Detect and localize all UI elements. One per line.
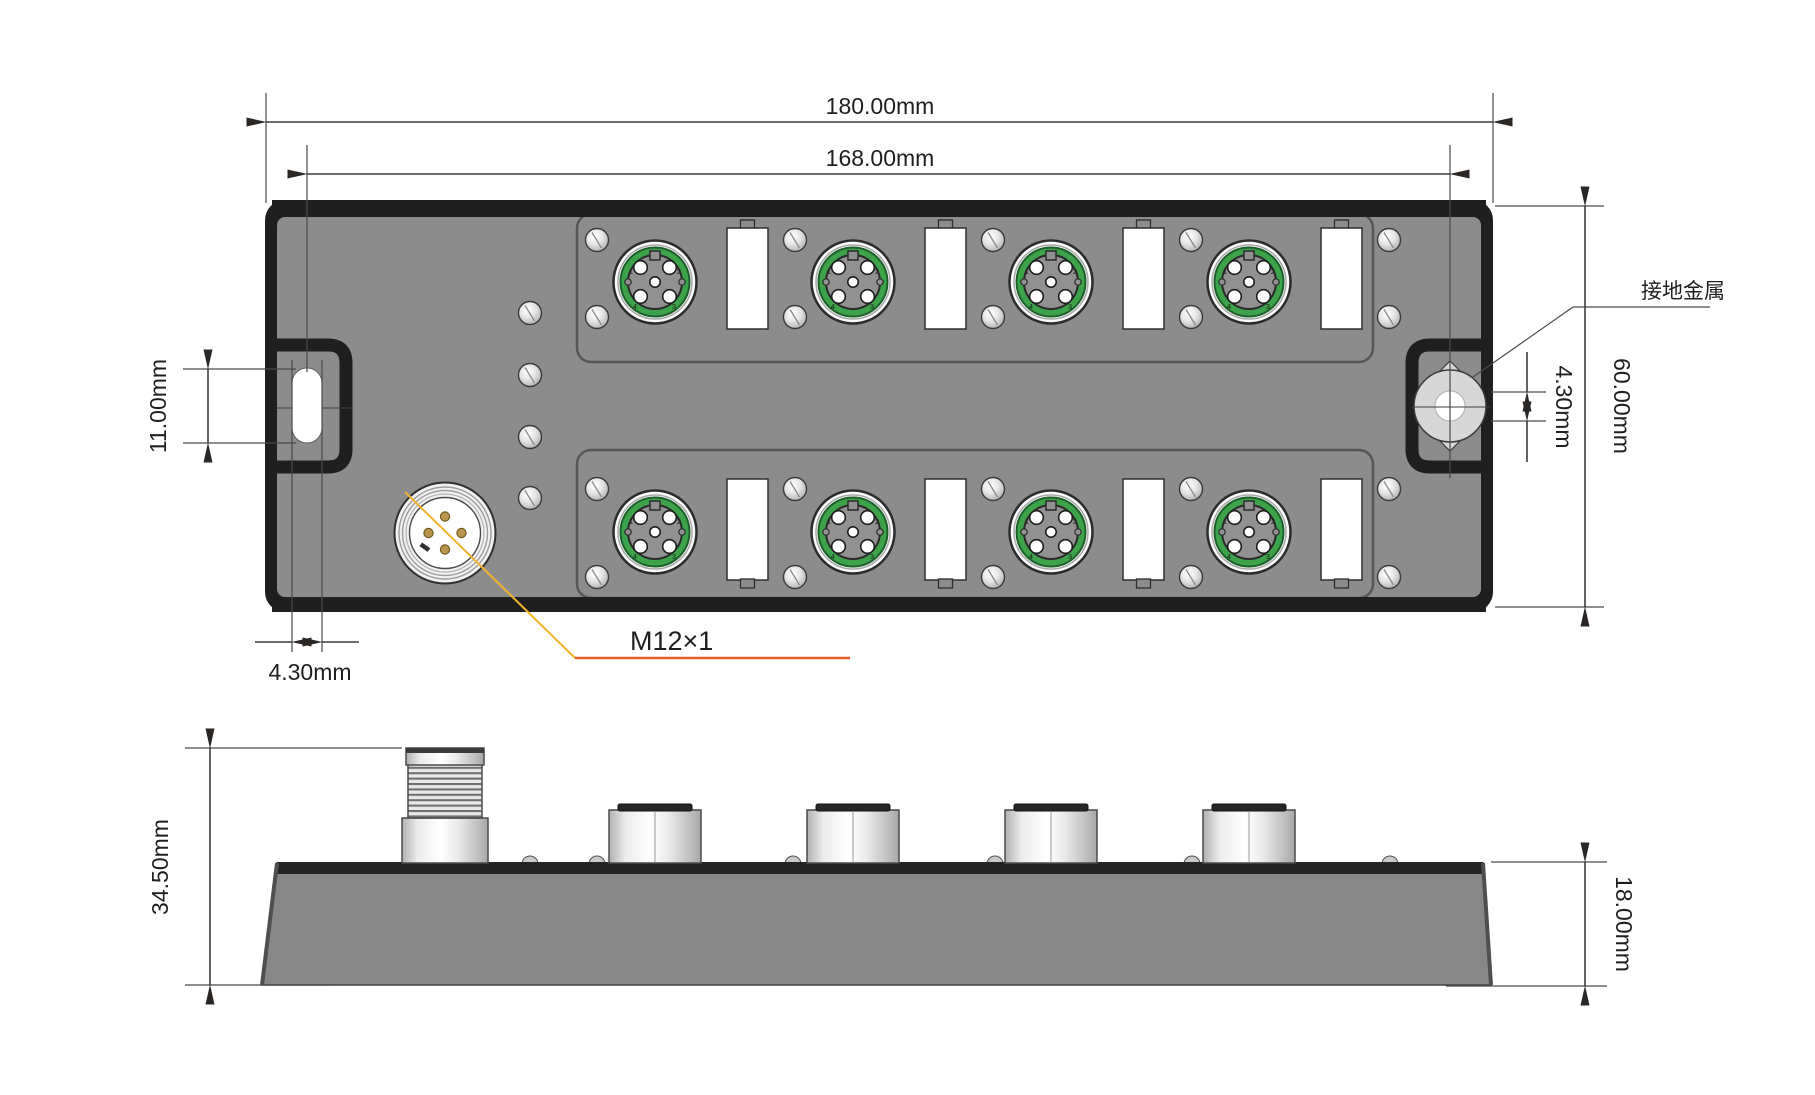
side-port-cylinder (1203, 804, 1295, 863)
screw (982, 306, 1005, 329)
side-port-cylinder (1005, 804, 1097, 863)
dim-slot-length: 11.00mm (145, 359, 171, 453)
technical-drawing-canvas: 1 2 3 4 (0, 0, 1815, 1095)
screw (1378, 478, 1401, 501)
screw (1180, 566, 1203, 589)
label-slot (727, 479, 768, 588)
bottom-bevel-strip (272, 597, 1486, 612)
screw (1180, 478, 1203, 501)
screw (784, 306, 807, 329)
m12-distribution-box-drawing: 1 2 3 4 (0, 0, 1815, 1095)
connector-top-edge (406, 748, 484, 753)
gold-pin (457, 528, 466, 537)
screw (1378, 229, 1401, 252)
label-slot (1123, 479, 1164, 588)
led-indicator (519, 302, 542, 325)
dim-mount-spacing: 168.00mm (826, 145, 935, 171)
screw (586, 229, 609, 252)
gold-pin (424, 528, 433, 537)
m12-port (812, 491, 895, 574)
side-top-bevel (276, 862, 1484, 874)
screw (1378, 566, 1401, 589)
side-view-body (262, 863, 1491, 985)
thread-spec-label: M12×1 (630, 626, 713, 656)
screw (982, 566, 1005, 589)
gold-pin (440, 512, 449, 521)
screw (1180, 306, 1203, 329)
led-indicator (519, 364, 542, 387)
mounting-slot-left (292, 368, 322, 443)
label-slot (1321, 220, 1362, 329)
thread-section (408, 764, 482, 818)
led-indicator (519, 487, 542, 510)
screw (784, 229, 807, 252)
side-port-cylinder (609, 804, 701, 863)
top-bevel-strip (272, 200, 1486, 217)
screw (1180, 229, 1203, 252)
screw (1378, 306, 1401, 329)
dim-base-height: 18.00mm (1611, 876, 1637, 972)
screw (982, 229, 1005, 252)
ground-metal-label: 接地金属 (1641, 280, 1725, 303)
screw (784, 478, 807, 501)
dim-slot-width: 4.30mm (268, 659, 351, 685)
screw (586, 566, 609, 589)
m12-port (614, 491, 697, 574)
m12-port (614, 241, 697, 324)
m12-port (1010, 491, 1093, 574)
side-port-cylinder (807, 804, 899, 863)
m12-port (1010, 241, 1093, 324)
label-slot (925, 220, 966, 329)
label-slot (727, 220, 768, 329)
screw (982, 478, 1005, 501)
dim-overall-width: 180.00mm (826, 93, 935, 119)
m12-port (1208, 491, 1291, 574)
screw (784, 566, 807, 589)
side-power-connector (402, 748, 488, 863)
dim-body-height: 60.00mm (1609, 358, 1635, 454)
top-view: M12×1 180.00mm 168.00mm 11.00mm 4.30mm 4… (145, 93, 1725, 685)
label-slot (1123, 220, 1164, 329)
gold-pin (440, 545, 449, 554)
m12-port (1208, 241, 1291, 324)
side-view: 34.50mm 18.00mm (147, 748, 1637, 986)
led-indicator (519, 426, 542, 449)
dim-total-height: 34.50mm (147, 819, 173, 915)
label-slot (925, 479, 966, 588)
screw (586, 478, 609, 501)
screw (586, 306, 609, 329)
label-slot (1321, 479, 1362, 588)
m12-port (812, 241, 895, 324)
dim-ground-hole: 4.30mm (1551, 365, 1577, 448)
